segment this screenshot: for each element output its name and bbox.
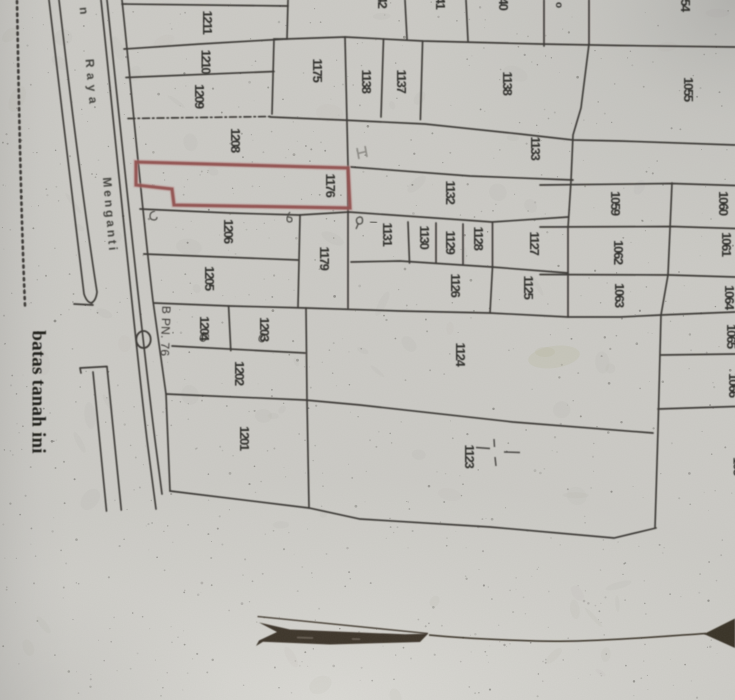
svg-text:1128: 1128 (471, 226, 486, 250)
svg-text:1064: 1064 (722, 285, 735, 311)
svg-text:1066: 1066 (726, 373, 735, 398)
svg-text:1176: 1176 (323, 173, 338, 197)
svg-text:1061: 1061 (719, 232, 734, 257)
svg-text:1138: 1138 (359, 69, 374, 93)
svg-text:1127: 1127 (527, 231, 542, 255)
svg-text:1137: 1137 (394, 69, 409, 93)
svg-text:1179: 1179 (317, 246, 332, 270)
svg-text:1129: 1129 (443, 230, 458, 254)
svg-text:1141: 1141 (433, 0, 448, 10)
svg-text:1060: 1060 (716, 191, 731, 216)
svg-text:1131: 1131 (380, 222, 395, 246)
svg-text:1210: 1210 (199, 50, 214, 75)
svg-text:1175: 1175 (310, 58, 325, 82)
svg-text:1208: 1208 (228, 128, 243, 153)
svg-text:1142: 1142 (375, 0, 390, 9)
svg-text:1205: 1205 (202, 266, 217, 291)
svg-text:1203: 1203 (257, 317, 272, 342)
svg-text:1062: 1062 (611, 240, 626, 265)
svg-text:1125: 1125 (521, 275, 536, 299)
svg-text:1130: 1130 (417, 225, 432, 249)
svg-text:1140: 1140 (496, 0, 511, 11)
svg-text:o: o (553, 2, 564, 8)
svg-text:1132: 1132 (443, 180, 458, 204)
svg-text:1138: 1138 (500, 71, 515, 95)
svg-text:1124: 1124 (453, 342, 468, 367)
svg-text:1202: 1202 (232, 361, 247, 386)
svg-text:1123: 1123 (462, 444, 477, 468)
svg-text:1063: 1063 (612, 283, 627, 308)
svg-text:1055: 1055 (681, 77, 696, 102)
svg-text:1126: 1126 (448, 273, 463, 297)
svg-text:105: 105 (731, 457, 735, 476)
svg-text:1211: 1211 (200, 10, 215, 34)
svg-text:batas tanah ini: batas tanah ini (28, 330, 49, 453)
svg-text:1065: 1065 (724, 324, 735, 349)
svg-text:1201: 1201 (237, 426, 252, 451)
svg-text:1206: 1206 (221, 219, 236, 244)
svg-text:B PN. 76: B PN. 76 (158, 306, 174, 357)
svg-text:1059: 1059 (608, 191, 623, 216)
svg-text:1204: 1204 (197, 316, 212, 342)
svg-text:1209: 1209 (192, 84, 207, 109)
svg-text:n: n (77, 6, 92, 15)
svg-text:1133: 1133 (528, 136, 543, 160)
